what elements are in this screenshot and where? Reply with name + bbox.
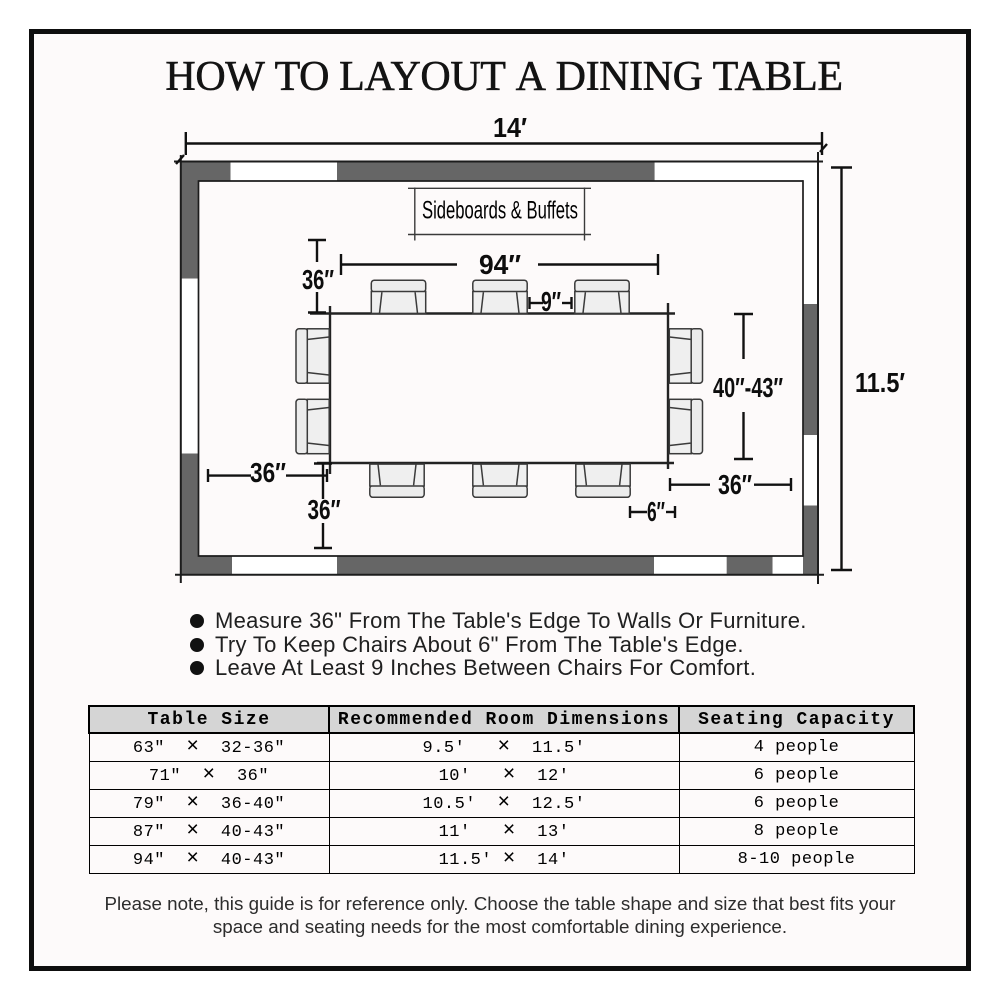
svg-text:14′: 14′ (493, 112, 527, 143)
svg-text:9″: 9″ (541, 286, 561, 317)
svg-text:Sideboards & Buffets: Sideboards & Buffets (422, 197, 578, 225)
svg-text:94″: 94″ (479, 249, 521, 280)
svg-text:36″: 36″ (718, 469, 752, 500)
svg-text:6″: 6″ (647, 496, 665, 527)
svg-text:11.5′: 11.5′ (855, 367, 905, 398)
svg-text:36″: 36″ (250, 457, 286, 488)
svg-text:36″: 36″ (302, 264, 334, 295)
svg-text:40″-43″: 40″-43″ (713, 372, 783, 403)
svg-text:36″: 36″ (308, 494, 341, 525)
